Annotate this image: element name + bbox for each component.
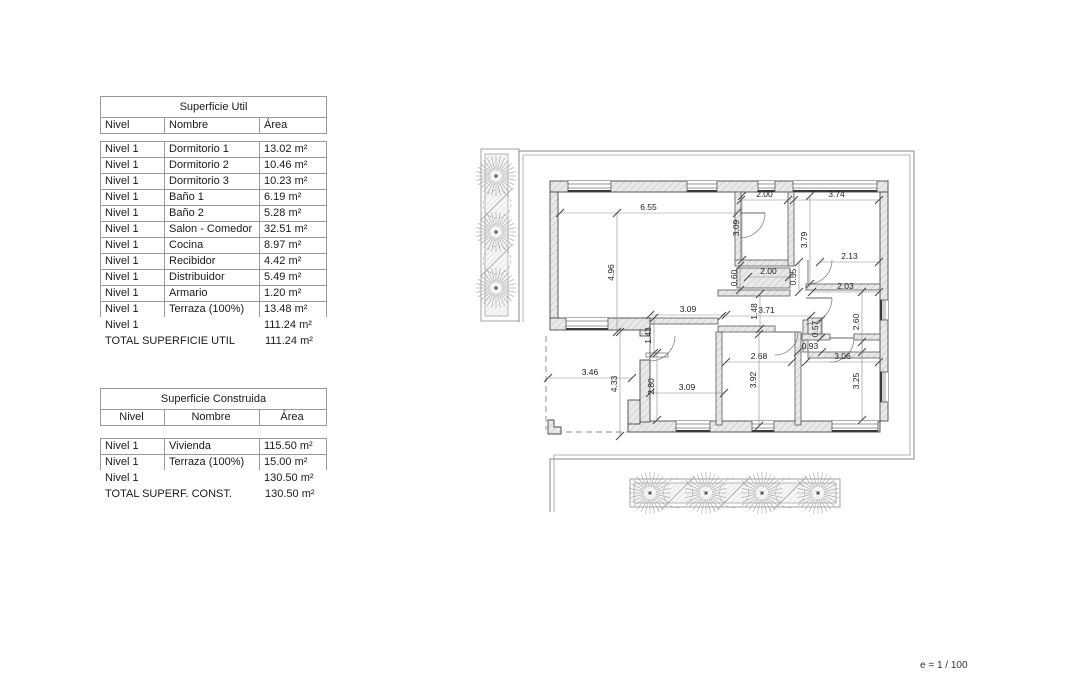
svg-text:3.46: 3.46 (582, 367, 599, 377)
svg-text:3.71: 3.71 (758, 305, 775, 315)
svg-text:3.92: 3.92 (748, 371, 758, 388)
svg-text:3.74: 3.74 (828, 189, 845, 199)
svg-text:2.00: 2.00 (760, 266, 777, 276)
tree-symbol (476, 212, 516, 252)
svg-text:0.55: 0.55 (788, 268, 798, 285)
scale-note: e = 1 / 100 (920, 660, 968, 671)
dim-v: 3.79 (799, 192, 814, 288)
dim-v: 4.96 (606, 209, 621, 336)
windows (566, 181, 888, 432)
svg-text:0.57: 0.57 (810, 320, 820, 337)
svg-text:2.60: 2.60 (851, 313, 861, 330)
dim-v: 3.92 (748, 330, 763, 430)
svg-text:3.79: 3.79 (799, 231, 809, 248)
svg-text:2.80: 2.80 (646, 378, 656, 395)
svg-text:6.55: 6.55 (640, 202, 657, 212)
svg-text:2.00: 2.00 (756, 189, 773, 199)
dim-h: 3.71 (718, 305, 815, 320)
site-boundary (519, 151, 914, 512)
dim-h: 3.09 (646, 304, 730, 319)
svg-text:3.25: 3.25 (851, 372, 861, 389)
dimension-lines: 6.552.003.742.132.002.033.093.713.463.09… (544, 189, 883, 440)
plan-sheet: Superficie Util Nivel Nombre Área Nivel … (0, 0, 1070, 682)
svg-text:4.33: 4.33 (609, 375, 619, 392)
svg-text:0.60: 0.60 (729, 269, 739, 286)
svg-text:2.13: 2.13 (841, 251, 858, 261)
tree-symbol (476, 268, 516, 308)
walls (546, 181, 888, 434)
tree-symbol (629, 472, 671, 514)
svg-text:3.09: 3.09 (680, 304, 697, 314)
svg-text:1.43: 1.43 (643, 327, 653, 344)
dim-h: 2.13 (816, 251, 883, 266)
svg-text:0.93: 0.93 (802, 341, 819, 351)
tree-symbol (685, 472, 727, 514)
dim-h: 6.55 (556, 202, 741, 217)
svg-text:3.06: 3.06 (834, 351, 851, 361)
tree-symbol (476, 156, 516, 196)
svg-text:4.96: 4.96 (606, 264, 616, 281)
svg-text:2.03: 2.03 (837, 281, 854, 291)
dim-h: 3.46 (544, 367, 636, 382)
svg-text:1.48: 1.48 (749, 303, 759, 320)
svg-text:3.09: 3.09 (731, 219, 741, 236)
dim-v: 4.33 (609, 328, 624, 440)
tree-symbol (741, 472, 783, 514)
floor-plan-drawing: 6.552.003.742.132.002.033.093.713.463.09… (0, 0, 1070, 682)
tree-symbol (797, 472, 839, 514)
svg-text:3.09: 3.09 (679, 382, 696, 392)
